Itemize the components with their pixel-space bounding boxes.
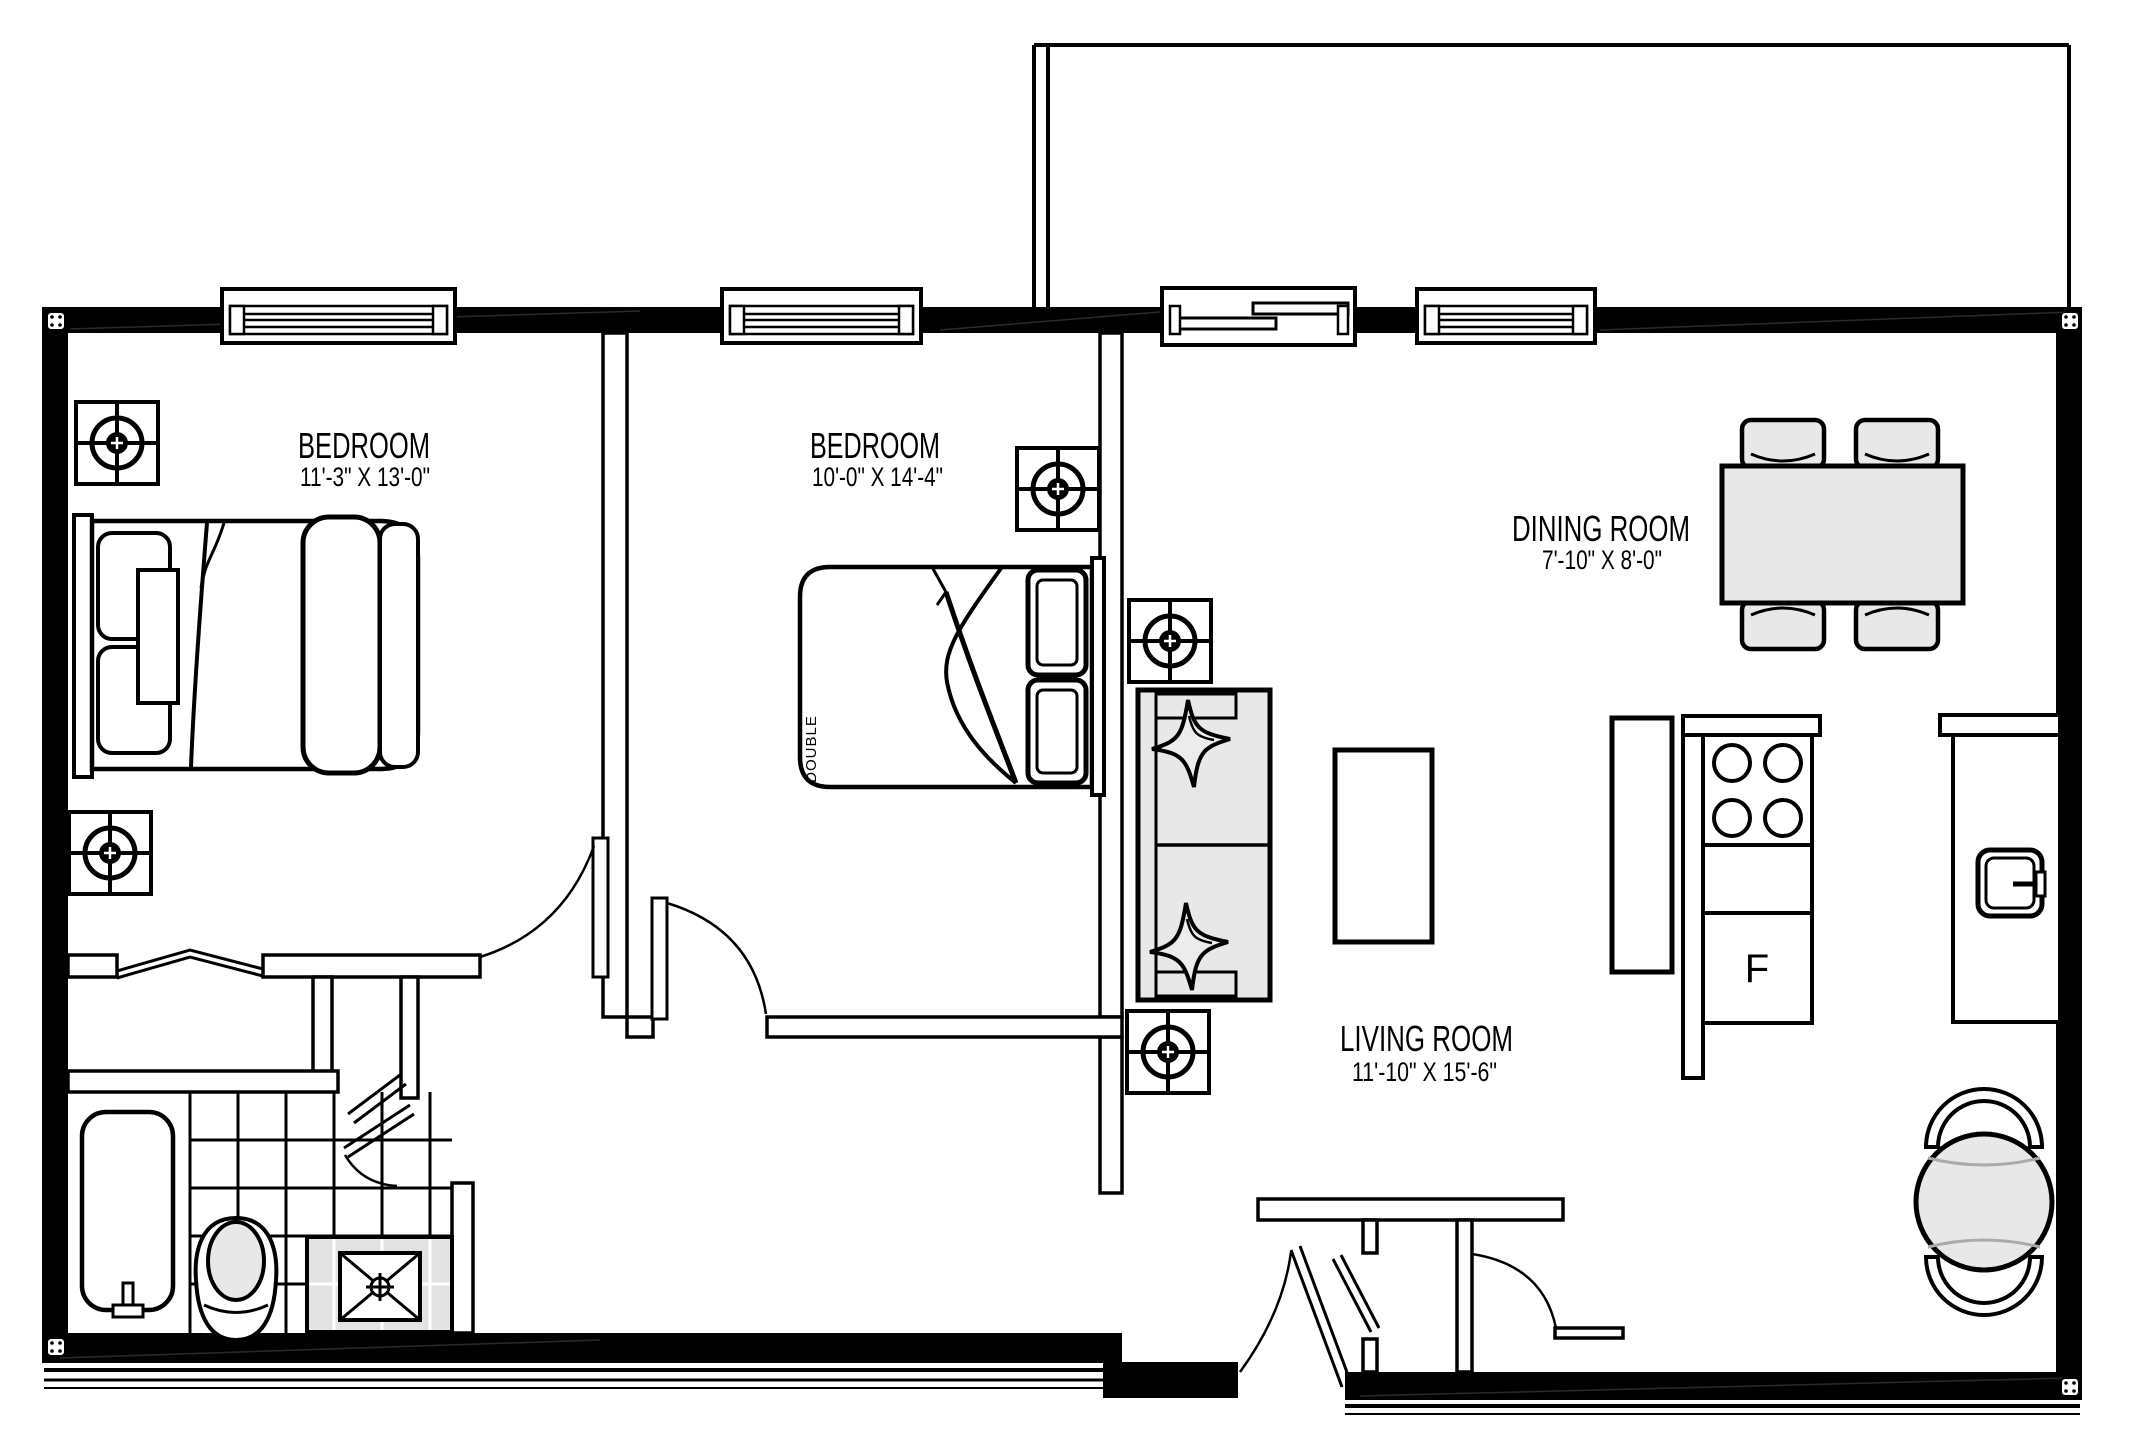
- bathtub: [82, 1112, 173, 1317]
- bistro-set: [1916, 1089, 2052, 1315]
- label-dining: DINING ROOM 7'-10" X 8'-0": [1512, 508, 1690, 575]
- bathroom: [82, 1092, 452, 1340]
- wall-left: [42, 307, 68, 1362]
- door-entry: [1240, 1246, 1351, 1387]
- kitchen: F: [1612, 715, 2060, 1078]
- wall-entry-east: [1457, 1220, 1472, 1372]
- room-name: DINING ROOM: [1512, 508, 1690, 549]
- label-living: LIVING ROOM 11'-10" X 15'-6": [1340, 1018, 1513, 1087]
- entry-closet-post-bottom: [1363, 1339, 1377, 1372]
- room-name: BEDROOM: [810, 425, 940, 466]
- ceiling-light-icon: [1129, 600, 1211, 682]
- ceiling-light-icon: [1127, 1011, 1209, 1093]
- wall-bottom-left: [42, 1333, 1122, 1363]
- room-name: BEDROOM: [298, 425, 430, 466]
- wall-bath-north: [68, 1071, 338, 1092]
- dining-table: [1722, 466, 1963, 603]
- room-name: LIVING ROOM: [1340, 1018, 1513, 1059]
- room-dims: 7'-10" X 8'-0": [1542, 545, 1662, 575]
- window-bedroom2: [722, 289, 921, 343]
- corner-marker-icon: [2061, 1378, 2079, 1396]
- wall-bed2-south: [767, 1017, 1122, 1037]
- bistro-table: [1916, 1134, 2052, 1270]
- floor-plan: DOUBLE: [0, 0, 2134, 1442]
- kitchen-counter-left: F: [1683, 716, 1820, 1078]
- entry-bench: [1555, 1328, 1623, 1338]
- living-furniture: [1138, 690, 1432, 1000]
- wall-bottom-step: [1103, 1362, 1238, 1398]
- wall-entry-north: [1258, 1199, 1563, 1220]
- bedroom2-furniture: DOUBLE: [800, 558, 1104, 795]
- kitchen-counter-sink: [1940, 715, 2060, 1022]
- corner-marker-icon: [2061, 312, 2079, 330]
- door-bedroom2: [652, 898, 766, 1019]
- label-bedroom1: BEDROOM 11'-3" X 13'-0": [298, 425, 430, 492]
- pillow: [1028, 680, 1086, 783]
- door-bedroom1: [480, 838, 608, 977]
- shower: [307, 1237, 452, 1332]
- wall-bottom-right: [1345, 1372, 2082, 1400]
- coffee-table: [1335, 750, 1432, 942]
- wall-closet-left-cap: [68, 955, 117, 977]
- ceiling-light-icon: [76, 402, 158, 484]
- bedroom1-furniture: [74, 515, 418, 777]
- wall-bath-east: [452, 1183, 473, 1333]
- bed-double-right: DOUBLE: [800, 558, 1104, 795]
- corner-marker-icon: [47, 1338, 65, 1356]
- room-dims: 11'-3" X 13'-0": [300, 462, 430, 492]
- wall-bed2-south-stub: [627, 1017, 653, 1037]
- door-nook: [1472, 1254, 1556, 1328]
- label-bedroom2: BEDROOM 10'-0" X 14'-4": [810, 425, 943, 492]
- door-bed1-closet-bifold: [117, 950, 263, 978]
- door-bathroom: [345, 1155, 397, 1186]
- room-dims: 11'-10" X 15'-6": [1352, 1057, 1497, 1087]
- wall-closet-right: [263, 955, 480, 977]
- bed-size-label: DOUBLE: [803, 715, 820, 783]
- entry-closet-post-top: [1363, 1220, 1377, 1253]
- kitchen-bar: [1612, 718, 1672, 972]
- sofa: [1138, 690, 1270, 1000]
- sliding-patio-door: [1162, 288, 1355, 345]
- balcony-outline: [1034, 45, 2069, 307]
- window-bedroom1: [222, 289, 455, 343]
- window-dining: [1417, 289, 1595, 343]
- pillow: [1028, 570, 1086, 675]
- bed-double-left: [74, 515, 418, 777]
- wall-closet-divider1: [313, 977, 332, 1073]
- door-hall-closet: [344, 1075, 414, 1157]
- floor-plan-svg: DOUBLE: [0, 0, 2134, 1442]
- toilet: [196, 1218, 277, 1340]
- ceiling-light-icon: [1017, 448, 1099, 530]
- fridge-label: F: [1745, 947, 1769, 991]
- corner-marker-icon: [47, 312, 65, 330]
- wall-closet-divider2: [401, 977, 418, 1098]
- room-dims: 10'-0" X 14'-4": [812, 462, 943, 492]
- door-entry-closet: [1333, 1255, 1379, 1332]
- sink: [1978, 850, 2045, 916]
- wall-hall-living: [1100, 1037, 1122, 1193]
- ceiling-light-icon: [69, 812, 151, 894]
- dining-furniture: [1722, 420, 1963, 649]
